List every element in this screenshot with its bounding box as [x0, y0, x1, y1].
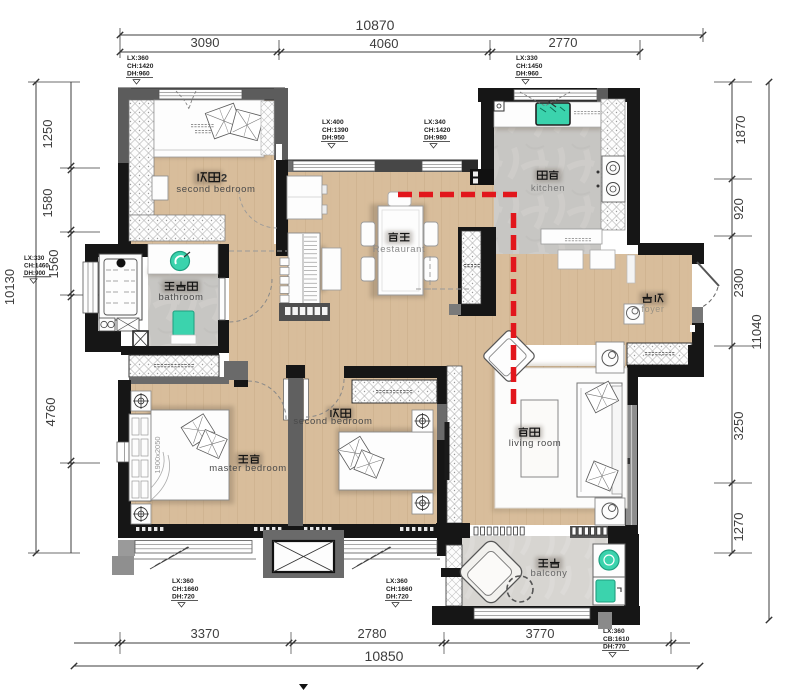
svg-text:CH:1450: CH:1450 — [516, 63, 543, 70]
svg-text:LX:340: LX:340 — [424, 119, 446, 126]
svg-text:kitchen: kitchen — [531, 183, 565, 194]
svg-text:DH:960: DH:960 — [516, 71, 539, 78]
svg-text:living room: living room — [509, 438, 562, 449]
svg-text:LX:360: LX:360 — [172, 578, 194, 585]
svg-text:master bedroom: master bedroom — [209, 463, 287, 474]
svg-text:LX:360: LX:360 — [386, 578, 408, 585]
svg-text:1270: 1270 — [731, 513, 746, 542]
svg-text:2770: 2770 — [549, 35, 578, 50]
svg-text:2780: 2780 — [358, 626, 387, 641]
svg-text:2300: 2300 — [731, 269, 746, 298]
svg-text:CH:1420: CH:1420 — [127, 63, 154, 70]
svg-text:CH:1660: CH:1660 — [386, 586, 413, 593]
svg-text:10850: 10850 — [365, 648, 404, 664]
svg-text:11040: 11040 — [749, 314, 764, 349]
svg-text:DH:900: DH:900 — [24, 270, 46, 277]
svg-text:LX:360: LX:360 — [603, 628, 625, 635]
svg-text:3370: 3370 — [191, 626, 220, 641]
svg-text:DH:770: DH:770 — [603, 644, 626, 651]
svg-text:DH:960: DH:960 — [127, 71, 150, 78]
svg-text:4760: 4760 — [43, 398, 58, 427]
svg-text:Restaurant: Restaurant — [373, 244, 425, 255]
svg-text:CH:1420: CH:1420 — [424, 127, 451, 134]
svg-text:LX:330: LX:330 — [516, 55, 538, 62]
svg-text:balcony: balcony — [531, 568, 568, 579]
svg-text:1900x2050: 1900x2050 — [153, 436, 162, 473]
svg-text:10130: 10130 — [2, 269, 17, 305]
svg-text:10870: 10870 — [356, 17, 395, 33]
svg-text:DH:950: DH:950 — [322, 135, 345, 142]
svg-text:CH:1660: CH:1660 — [172, 586, 199, 593]
svg-text:second bedroom: second bedroom — [176, 184, 255, 195]
svg-text:second bedroom: second bedroom — [293, 416, 372, 427]
svg-text:DH:980: DH:980 — [424, 135, 447, 142]
svg-text:LX:360: LX:360 — [127, 55, 149, 62]
svg-text:920: 920 — [731, 198, 746, 220]
svg-text:CH:1460: CH:1460 — [24, 262, 49, 269]
svg-text:LX:400: LX:400 — [322, 119, 344, 126]
svg-text:3090: 3090 — [191, 35, 220, 50]
svg-text:2: 2 — [221, 173, 227, 185]
svg-text:4060: 4060 — [370, 36, 399, 51]
svg-text:CH:1390: CH:1390 — [322, 127, 349, 134]
svg-text:bathroom: bathroom — [159, 292, 204, 303]
svg-text:LX:330: LX:330 — [24, 255, 45, 262]
svg-text:DH:720: DH:720 — [386, 594, 409, 601]
svg-text:foyer: foyer — [641, 304, 664, 314]
svg-text:CB:1610: CB:1610 — [603, 636, 630, 643]
svg-text:1580: 1580 — [40, 189, 55, 218]
svg-text:1250: 1250 — [40, 120, 55, 149]
svg-text:DH:720: DH:720 — [172, 594, 195, 601]
svg-text:3250: 3250 — [731, 412, 746, 441]
svg-text:1870: 1870 — [733, 116, 748, 145]
svg-text:3770: 3770 — [526, 626, 555, 641]
